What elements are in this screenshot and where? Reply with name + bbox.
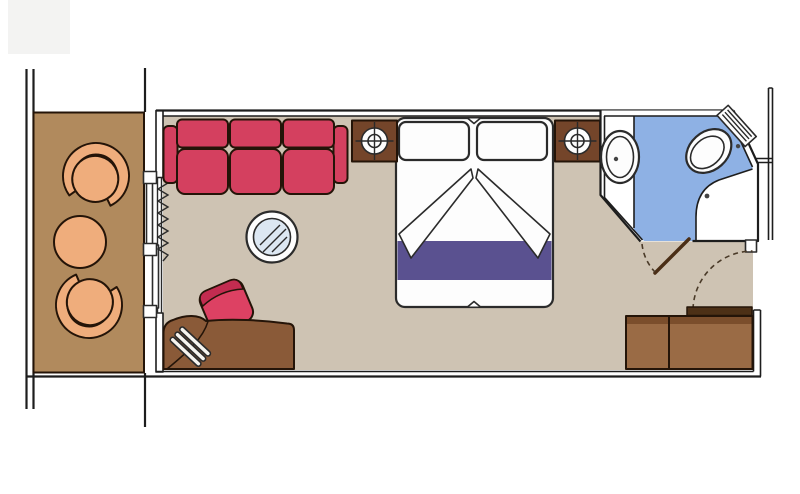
sofa <box>164 120 348 195</box>
sliding-door-panel <box>147 183 153 246</box>
door-jamb <box>144 306 157 318</box>
shower-drain <box>705 194 710 199</box>
entry-door-leaf <box>687 307 752 316</box>
floor-plan-canvas <box>0 0 800 494</box>
coffee-table <box>247 212 298 263</box>
pillow-right <box>477 122 547 160</box>
double-bed <box>396 118 553 307</box>
door-jamb <box>144 172 157 184</box>
balcony-table <box>54 216 106 268</box>
adjacent-structure <box>8 0 70 54</box>
pillow-left <box>399 122 469 160</box>
nightstand-left <box>352 121 397 162</box>
wardrobe <box>626 316 753 369</box>
nightstand-right <box>555 121 600 162</box>
door-jamb <box>144 244 157 256</box>
door-jamb <box>746 240 757 252</box>
vanity-sink <box>601 131 639 183</box>
floor-plan <box>0 0 800 494</box>
